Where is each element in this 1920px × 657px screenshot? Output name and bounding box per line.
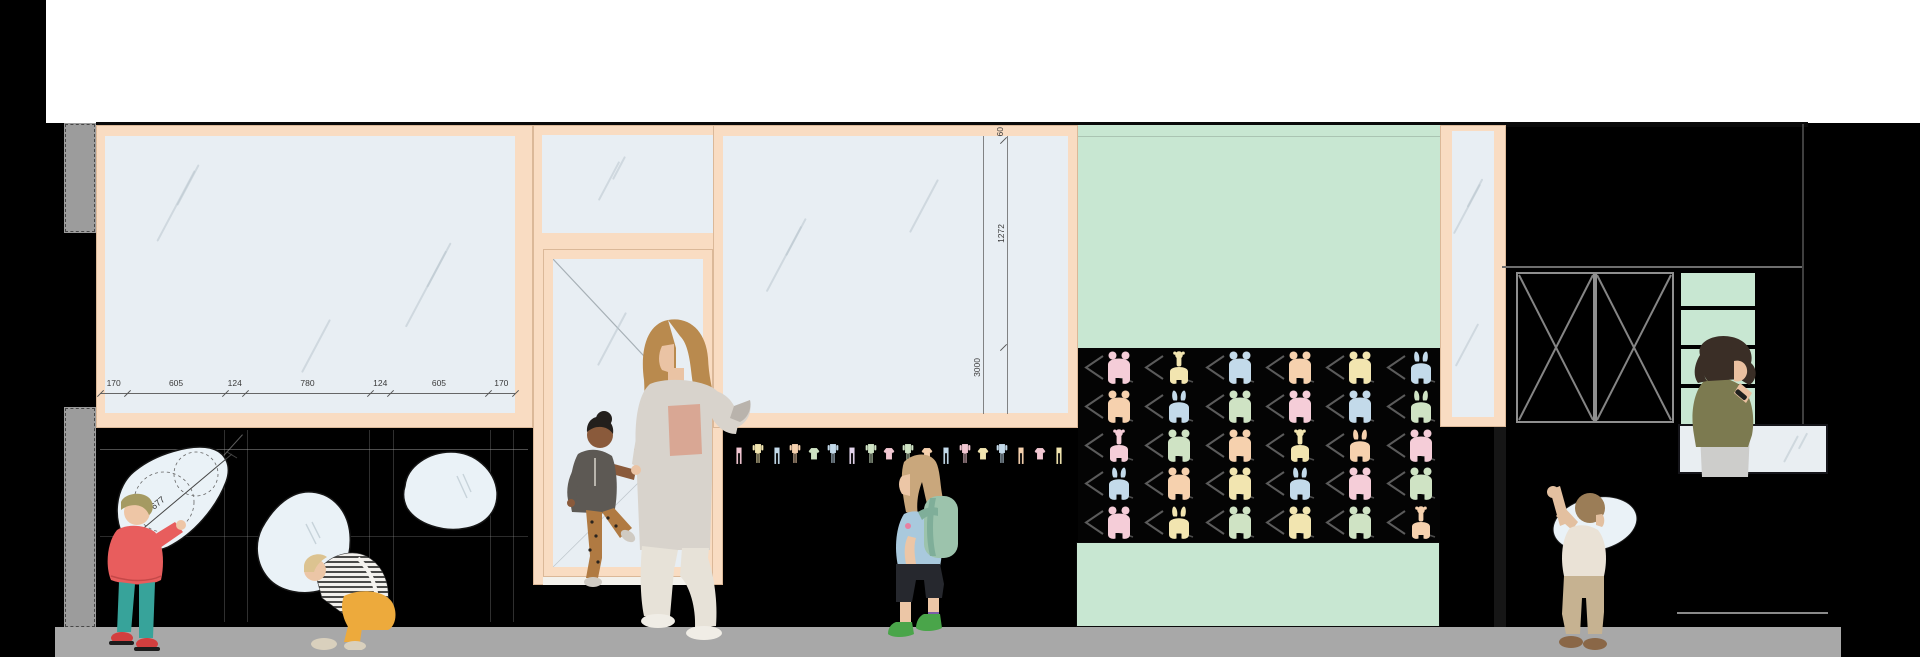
pattern-animal-cell: [1078, 348, 1138, 387]
under-desk-line: [1677, 612, 1828, 614]
pilaster-lower: [64, 407, 96, 628]
pattern-animal-cell: [1078, 464, 1138, 503]
dimension-label: 605: [432, 378, 446, 388]
pattern-animal-cell: [1259, 348, 1319, 387]
dimension-label: 124: [373, 378, 387, 388]
pattern-animal-cell: [1259, 387, 1319, 426]
pattern-animal-cell: [1199, 348, 1259, 387]
pattern-animal-cell: [1319, 426, 1379, 465]
person-toddler-reaching: [1538, 486, 1638, 652]
pattern-animal-cell: [1259, 426, 1319, 465]
pattern-animal-cell: [1078, 426, 1138, 465]
wall-guide-line-v: [513, 430, 514, 622]
dimension-label: 170: [494, 378, 508, 388]
pattern-animal-cell: [1319, 348, 1379, 387]
person-girl-backpack: [878, 452, 968, 638]
hanging-garment: [1053, 444, 1065, 466]
hanging-garment: [977, 445, 989, 467]
pattern-animal-cell: [1259, 503, 1319, 542]
storefront-window-center: [713, 125, 1078, 428]
hanging-garment: [752, 442, 764, 464]
dimension-label: 170: [107, 378, 121, 388]
hanging-garment: [789, 442, 801, 464]
hanging-garment: [1015, 444, 1027, 466]
hanging-garment: [846, 444, 858, 466]
pattern-animal-cell: [1380, 348, 1440, 387]
pillar-below-window: [1494, 427, 1506, 627]
pattern-animal-cell: [1380, 426, 1440, 465]
pattern-animal-cell: [1078, 387, 1138, 426]
pattern-animal-cell: [1078, 503, 1138, 542]
pattern-animal-cell: [1199, 426, 1259, 465]
pattern-animal-cell: [1138, 426, 1198, 465]
x-door-cabinet[interactable]: [1516, 272, 1674, 423]
pilaster-upper: [64, 123, 96, 233]
pattern-animal-cell: [1380, 503, 1440, 542]
window-glass: [1452, 131, 1494, 417]
person-toddler-crouching: [300, 548, 400, 650]
dimension-label: 780: [300, 378, 314, 388]
dimension-label: 605: [169, 378, 183, 388]
dimension-label: 124: [228, 378, 242, 388]
dim-label-1272: 1272: [996, 224, 1006, 243]
door-transom-glass: [542, 135, 714, 233]
pattern-animal-cell: [1138, 348, 1198, 387]
person-toddler-red-jacket: [95, 492, 190, 652]
side-window-narrow: [1440, 125, 1506, 427]
dimension-line: [100, 393, 515, 394]
mirror-blob-3: [395, 446, 503, 542]
pattern-animal-cell: [1319, 503, 1379, 542]
pattern-animal-cell: [1199, 464, 1259, 503]
pattern-animal-cell: [1380, 387, 1440, 426]
header-band: [46, 0, 1920, 123]
window-glass: [105, 136, 515, 413]
window-glass: [723, 136, 1068, 413]
vertical-dim-line-inner: [1007, 136, 1008, 414]
interior-ceiling-line: [1502, 266, 1804, 268]
interior-wall-line: [1802, 124, 1804, 425]
hanging-garment: [808, 445, 820, 467]
person-woman-at-door: [612, 318, 752, 644]
bottom-dimension-row: 170605124780124605170: [100, 378, 515, 398]
elevation-drawing: 170605124780124605170 60 12: [0, 0, 1920, 657]
pattern-animal-cell: [1319, 387, 1379, 426]
hanging-garment: [771, 444, 783, 466]
pattern-animal-cell: [1199, 503, 1259, 542]
pattern-animal-cell: [1259, 464, 1319, 503]
pattern-animal-cell: [1138, 387, 1198, 426]
pattern-animal-cell: [1138, 503, 1198, 542]
green-wall-panel: [1078, 125, 1440, 348]
pattern-animal-cell: [1380, 464, 1440, 503]
person-woman-at-desk: [1688, 335, 1772, 477]
hanging-garment: [865, 442, 877, 464]
dim-label-60: 60: [995, 127, 1005, 136]
pattern-animal-cell: [1319, 464, 1379, 503]
hanging-garment: [996, 442, 1008, 464]
pattern-animal-cell: [1138, 464, 1198, 503]
mint-counter: [1076, 542, 1440, 627]
animal-pattern-wall: [1078, 348, 1440, 542]
vertical-dim-line-outer: [983, 136, 984, 414]
hanging-garment: [827, 442, 839, 464]
dim-label-3000: 3000: [972, 358, 982, 377]
pattern-animal-cell: [1199, 387, 1259, 426]
hanging-garment: [1034, 445, 1046, 467]
cabinet-x-braces: [1518, 274, 1672, 421]
